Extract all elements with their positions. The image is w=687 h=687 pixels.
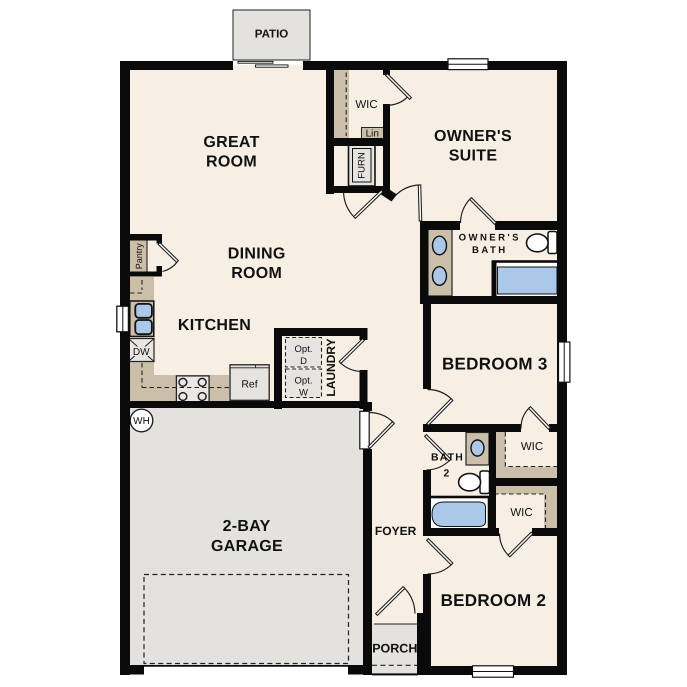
- svg-text:Opt.: Opt.: [295, 376, 313, 387]
- svg-text:BATH: BATH: [431, 452, 464, 463]
- svg-text:Ref: Ref: [241, 379, 257, 391]
- svg-text:BEDROOM 3: BEDROOM 3: [442, 355, 548, 374]
- svg-text:WH: WH: [133, 416, 150, 427]
- svg-text:DW: DW: [133, 347, 150, 358]
- svg-text:Opt.: Opt.: [295, 344, 313, 355]
- svg-text:WIC: WIC: [510, 507, 532, 519]
- svg-text:2-BAY: 2-BAY: [223, 518, 271, 535]
- svg-text:FURN: FURN: [356, 152, 367, 179]
- svg-text:WIC: WIC: [521, 441, 543, 453]
- svg-text:ROOM: ROOM: [206, 153, 257, 170]
- svg-text:D: D: [300, 356, 307, 367]
- svg-text:Lin: Lin: [366, 128, 379, 139]
- svg-text:W: W: [299, 388, 308, 399]
- svg-text:LAUNDRY: LAUNDRY: [324, 338, 338, 396]
- svg-text:SUITE: SUITE: [449, 147, 498, 164]
- svg-text:PATIO: PATIO: [255, 29, 288, 41]
- svg-text:ROOM: ROOM: [231, 265, 282, 282]
- svg-text:Pantry: Pantry: [134, 243, 144, 270]
- svg-text:2: 2: [444, 468, 450, 479]
- svg-text:OWNER'S: OWNER'S: [434, 128, 512, 145]
- svg-text:GARAGE: GARAGE: [211, 538, 283, 555]
- svg-text:BATH: BATH: [472, 245, 508, 256]
- svg-text:PORCH: PORCH: [372, 642, 417, 656]
- svg-text:BEDROOM 2: BEDROOM 2: [441, 591, 547, 610]
- svg-text:GREAT: GREAT: [203, 134, 259, 151]
- svg-text:OWNER'S: OWNER'S: [459, 232, 521, 243]
- svg-text:KITCHEN: KITCHEN: [178, 317, 251, 334]
- svg-text:WIC: WIC: [355, 99, 377, 111]
- svg-text:DINING: DINING: [228, 246, 286, 263]
- svg-text:FOYER: FOYER: [375, 524, 417, 538]
